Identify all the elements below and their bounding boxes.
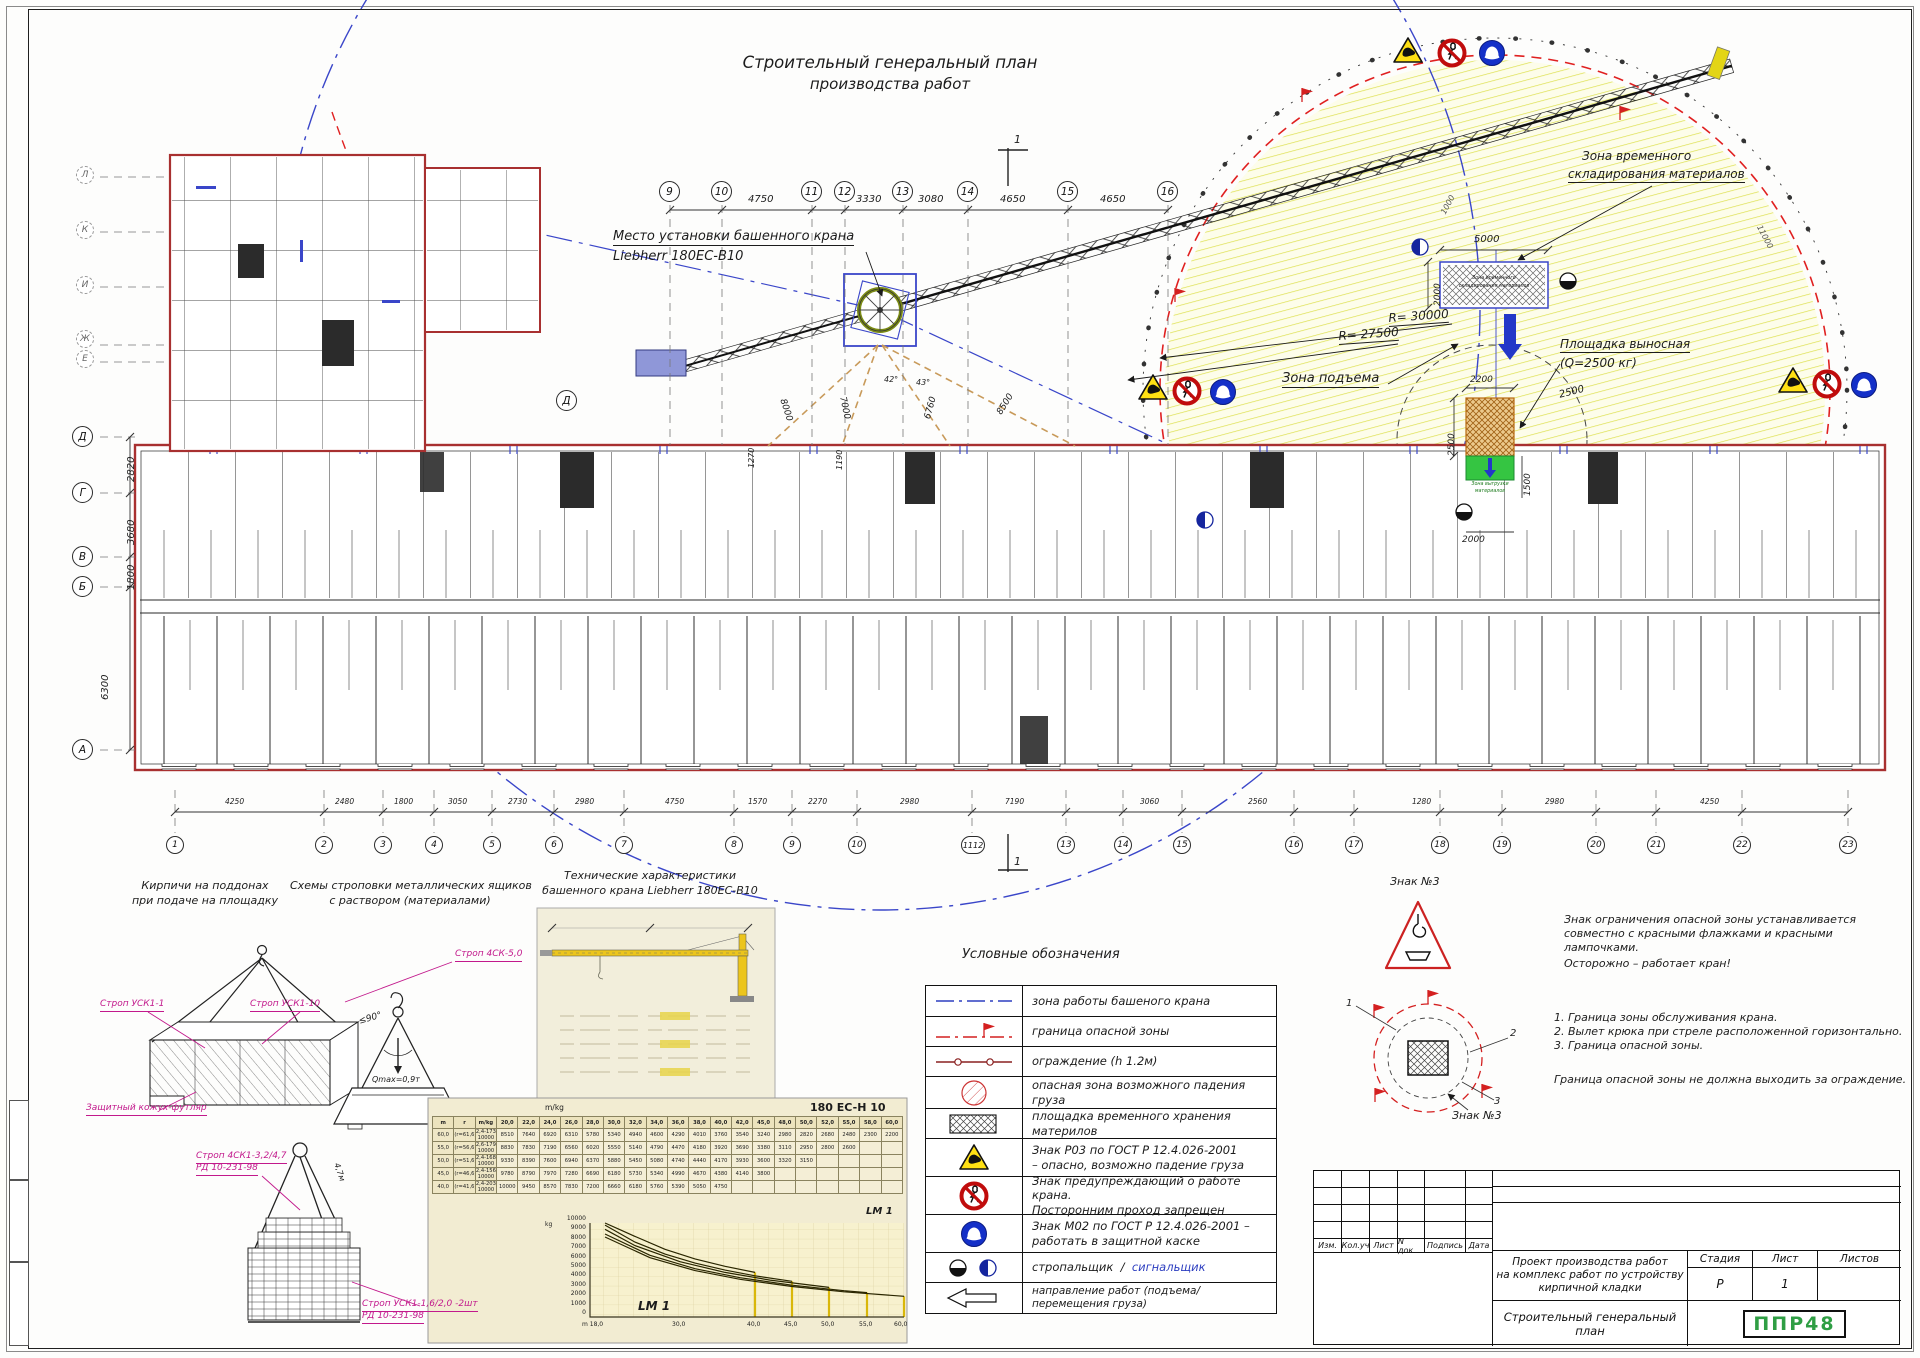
axis-bottom-23: 23: [1839, 836, 1857, 854]
dim-3330: 3330: [856, 194, 881, 205]
axis-top-12: 12: [834, 181, 855, 202]
rev-cell: [1370, 1188, 1398, 1205]
sheet-title-line2: производства работ: [700, 76, 1080, 93]
bdim-5: 2980: [575, 798, 594, 806]
rev-cell: [1425, 1205, 1466, 1222]
storage-inner-text1: Зона временного: [1446, 276, 1542, 281]
note-list-item1: 1. Граница зоны обслуживания крана.: [1554, 1012, 1778, 1024]
ytick-4000: 4000: [560, 1272, 586, 1279]
axis-bottom-3: 3: [374, 836, 392, 854]
section-marker-1-top: 1: [1014, 134, 1021, 146]
rev-cell: [1342, 1222, 1370, 1239]
dim-3680: 3680: [126, 520, 137, 545]
legend-row-fall-zone: опасная зона возможного падения груза: [926, 1076, 1276, 1108]
legend-text: Знак предупреждающий о работе крана.: [1032, 1174, 1241, 1202]
load-capacity-table: mrm/kg20,022,024,026,028,030,032,034,036…: [432, 1116, 903, 1194]
platform-label-line2: (Q=2500 кг): [1560, 357, 1637, 370]
axis-bottom-4: 4: [425, 836, 443, 854]
side-stamp-cell: [9, 1180, 29, 1262]
bdim-4: 2730: [508, 798, 527, 806]
axis-bottom-15: 15: [1173, 836, 1191, 854]
dim-2820: 2820: [126, 457, 137, 482]
ytick-9000: 9000: [560, 1225, 586, 1232]
dim-1190: 1190: [836, 450, 845, 470]
sheet-number-value: 1: [1753, 1268, 1818, 1301]
unload-zone-label1: Зона выгрузки: [1452, 482, 1528, 487]
ppr48-logo: ППР48: [1743, 1310, 1845, 1338]
ytick-0: 0: [560, 1310, 586, 1317]
ytick-10000: 10000: [560, 1216, 586, 1223]
note-list-item3: 3. Граница опасной зоны.: [1554, 1040, 1703, 1052]
bdim-11: 3060: [1140, 798, 1159, 806]
project-line2: на комплекс работ по устройству: [1496, 1269, 1683, 1282]
dim-2200: 2200: [1470, 376, 1493, 386]
rev-cell: [1370, 1171, 1398, 1188]
rev-cell: [1342, 1205, 1370, 1222]
tb-strip1: [1493, 1171, 1901, 1187]
axis-bottom-21: 21: [1647, 836, 1665, 854]
callout-1: 1: [1346, 998, 1352, 1009]
cover-label: Защитный кожух-футляр: [86, 1104, 207, 1116]
warning-note-line3: лампочками.: [1564, 942, 1639, 954]
crane-model-label: 180 EC-H 10: [810, 1102, 886, 1114]
rev-header-ndok: N док.: [1398, 1239, 1425, 1253]
sling5-label-line2: РД 10-231-98: [362, 1312, 424, 1324]
legend-text: Знак М02 по ГОСТ Р 12.4.026-2001 –: [1032, 1219, 1250, 1233]
lm1-label-table: LM 1: [866, 1206, 893, 1217]
kg-axis-label: kg: [545, 1222, 552, 1229]
bdim-2: 1800: [394, 798, 413, 806]
slings-title-line1: Схемы строповки металлических ящиков: [290, 880, 530, 892]
axis-D-repeat: Д: [556, 390, 577, 411]
axis-bottom-20: 20: [1587, 836, 1605, 854]
axis-bottom-9: 9: [783, 836, 801, 854]
axis-bottom-7: 7: [615, 836, 633, 854]
fall-zone-symbol: [926, 1077, 1023, 1108]
sling1-label: Строп 4СК-5,0: [455, 950, 522, 962]
legend-row-fence: ограждение (h 1.2м): [926, 1046, 1276, 1076]
rev-header-data: Дата: [1466, 1239, 1493, 1253]
sign-no3-label-top: Знак №3: [1390, 876, 1440, 888]
legend-text: – опасно, возможно падение груза: [1032, 1158, 1244, 1172]
legend-row-danger-boundary: граница опасной зоны: [926, 1016, 1276, 1046]
sign-m02-symbol: [926, 1215, 1023, 1252]
bdim-7: 1570: [748, 798, 767, 806]
sheet-title-line1: Строительный генеральный план: [700, 54, 1080, 72]
rev-header-podpis: Подпись: [1425, 1239, 1466, 1253]
rev-cell: [1314, 1222, 1342, 1239]
warning-note-line1: Знак ограничения опасной зоны устанавлив…: [1564, 914, 1856, 926]
axis-bottom-17: 17: [1345, 836, 1363, 854]
bdim-13: 1280: [1412, 798, 1431, 806]
dim-2500-platform: 2500: [1448, 433, 1458, 456]
doc-title-cell: Строительный генеральный план: [1493, 1301, 1688, 1346]
angle-42: 42°: [884, 376, 898, 385]
angle-43: 43°: [916, 379, 930, 388]
bdim-9: 2980: [900, 798, 919, 806]
dim-5000: 5000: [1474, 234, 1499, 245]
project-line1: Проект производства работ: [1512, 1256, 1667, 1269]
dim-4650a: 4650: [1000, 194, 1025, 205]
axis-left-Zh: Ж: [76, 330, 94, 348]
axis-left-E: Е: [76, 350, 94, 368]
storage-inner-text2: складирования материалов: [1446, 284, 1542, 289]
ytick-3000: 3000: [560, 1282, 586, 1289]
axis-bottom-22: 22: [1733, 836, 1751, 854]
crane-location-label-line1: Место установки башенного крана: [613, 230, 854, 246]
sign-no3-label-bottom: Знак №3: [1452, 1110, 1502, 1122]
rev-cell: [1370, 1205, 1398, 1222]
side-stamp-cell: [9, 1262, 29, 1346]
project-name-cell: Проект производства работ на комплекс ра…: [1493, 1251, 1688, 1301]
ytick-1000: 1000: [560, 1301, 586, 1308]
lm1-label-chart: LM 1: [638, 1300, 670, 1313]
bdim-6: 4750: [665, 798, 684, 806]
axis-left-L: Л: [76, 166, 94, 184]
xtick-18: m 18,0: [582, 1322, 603, 1329]
slings-title-line2: с раствором (материалами): [290, 895, 530, 907]
rev-cell: [1314, 1171, 1342, 1188]
axis-left-D: Д: [72, 426, 93, 447]
axis-bottom-5: 5: [483, 836, 501, 854]
note-list-item2: 2. Вылет крюка при стреле расположенной …: [1554, 1026, 1902, 1038]
sling4-label-line2: РД 10-231-98: [196, 1164, 258, 1176]
rev-cell: [1466, 1188, 1493, 1205]
legend-row-storage: площадка временного хранения материлов: [926, 1108, 1276, 1138]
legend-row-work-zone: зона работы башеного крана: [926, 986, 1276, 1016]
note-footer: Граница опасной зоны не должна выходить …: [1554, 1074, 1906, 1086]
warning-note-line4: Осторожно – работает кран!: [1564, 958, 1731, 970]
tb-strip2: [1493, 1187, 1901, 1203]
warning-note-line2: совместно с красными флажками и красными: [1564, 928, 1833, 940]
riggers-symbol: [926, 1253, 1023, 1282]
side-stamp-cell: [9, 1100, 29, 1180]
direction-arrow-symbol: [926, 1283, 1023, 1313]
rev-cell: [1398, 1188, 1425, 1205]
tb-strip3: [1493, 1203, 1901, 1251]
dim-2000-below: 2000: [1462, 536, 1485, 546]
title-block: Изм. Кол.уч Лист N док. Подпись Дата Про…: [1313, 1170, 1900, 1345]
axis-bottom-1: 1: [166, 836, 184, 854]
axis-bottom-16: 16: [1285, 836, 1303, 854]
legend-row-riggers: стропальщик / сигнальщик: [926, 1252, 1276, 1282]
sign-p03-symbol: [926, 1139, 1023, 1176]
ytick-2000: 2000: [560, 1291, 586, 1298]
rev-cell: [1398, 1205, 1425, 1222]
logo-cell: ППР48: [1688, 1301, 1901, 1346]
storage-area-symbol: [926, 1109, 1023, 1138]
sheets-header: Листов: [1818, 1251, 1901, 1268]
legend-text: работать в защитной каске: [1032, 1234, 1200, 1248]
sling3-label: Строп УСК1-10: [250, 1000, 320, 1012]
legend-row-sign-crane: Знак предупреждающий о работе крана.Пост…: [926, 1176, 1276, 1214]
signature-area: [1314, 1253, 1493, 1346]
legend-row-sign-m02: Знак М02 по ГОСТ Р 12.4.026-2001 –работа…: [926, 1214, 1276, 1252]
rev-cell: [1466, 1171, 1493, 1188]
legend-row-sign-p03: Знак Р03 по ГОСТ Р 12.4.026-2001– опасно…: [926, 1138, 1276, 1176]
axis-bottom-10: 10: [848, 836, 866, 854]
axis-left-G: Г: [72, 482, 93, 503]
bdim-15: 4250: [1700, 798, 1719, 806]
ytick-8000: 8000: [560, 1235, 586, 1242]
axis-bottom-1112: 1112: [961, 836, 985, 854]
rigger-word: стропальщик: [1032, 1260, 1113, 1274]
xtick-60: 60,0: [894, 1322, 907, 1329]
dim-1270: 1270: [748, 448, 757, 468]
axis-bottom-18: 18: [1431, 836, 1449, 854]
rev-cell: [1370, 1222, 1398, 1239]
load-moment-chart: [588, 1220, 906, 1320]
dim-4650b: 4650: [1100, 194, 1125, 205]
ytick-7000: 7000: [560, 1244, 586, 1251]
bricks-title-line1: Кирпичи на поддонах: [100, 880, 310, 892]
sheet-header: Лист: [1753, 1251, 1818, 1268]
axis-bottom-8: 8: [725, 836, 743, 854]
xtick-50: 50,0: [821, 1322, 834, 1329]
dim-6300: 6300: [100, 675, 111, 700]
bdim-10: 7190: [1005, 798, 1024, 806]
axis-top-15: 15: [1057, 181, 1078, 202]
axis-top-11: 11: [801, 181, 822, 202]
legend-text: Посторонним проход запрещен: [1032, 1203, 1225, 1217]
dim-2000-storage: 2000: [1434, 283, 1444, 306]
axis-top-14: 14: [957, 181, 978, 202]
axis-left-I: И: [76, 276, 94, 294]
qmax-label: Qmax=0,9т: [372, 1076, 420, 1085]
danger-boundary-symbol: [926, 1017, 1023, 1046]
construction-plan-sheet: { "sheet": {"title": ["Строительный гене…: [0, 0, 1920, 1358]
xtick-40: 40,0: [747, 1322, 760, 1329]
work-zone-line-symbol: [926, 986, 1023, 1016]
callout-3: 3: [1494, 1096, 1500, 1107]
legend-text: Знак Р03 по ГОСТ Р 12.4.026-2001: [1032, 1143, 1237, 1157]
signalman-word: сигнальщик: [1132, 1260, 1206, 1274]
unit-label: m/kg: [545, 1104, 564, 1112]
rev-cell: [1466, 1222, 1493, 1239]
rev-cell: [1425, 1222, 1466, 1239]
fence-symbol: [926, 1047, 1023, 1076]
storage-zone-label-line1: Зона временного: [1582, 150, 1691, 163]
sign-crane-symbol: [926, 1177, 1023, 1214]
callout-2: 2: [1510, 1028, 1516, 1039]
axis-bottom-2: 2: [315, 836, 333, 854]
bdim-0: 4250: [225, 798, 244, 806]
axis-left-B: Б: [72, 576, 93, 597]
dim-3080: 3080: [918, 194, 943, 205]
rev-cell: [1466, 1205, 1493, 1222]
rev-cell: [1342, 1171, 1370, 1188]
xtick-30: 30,0: [672, 1322, 685, 1329]
axis-bottom-6: 6: [545, 836, 563, 854]
axis-left-A: А: [72, 739, 93, 760]
ytick-5000: 5000: [560, 1263, 586, 1270]
sheets-total-value: [1818, 1268, 1901, 1301]
dim-1800: 1800: [126, 565, 137, 590]
crane-location-label-line2: Liebherr 180EC-B10: [613, 250, 743, 264]
axis-top-9: 9: [659, 181, 680, 202]
axis-top-10: 10: [711, 181, 732, 202]
storage-zone-label-line2: складирования материалов: [1568, 168, 1745, 183]
revision-table: Изм. Кол.уч Лист N док. Подпись Дата: [1314, 1171, 1493, 1253]
platform-label-line1: Площадка выносная: [1560, 338, 1690, 353]
legend-title: Условные обозначения: [962, 948, 1120, 962]
lifting-zone-label: Зона подъема: [1282, 372, 1379, 388]
xtick-45: 45,0: [784, 1322, 797, 1329]
rev-cell: [1314, 1205, 1342, 1222]
rev-header-list: Лист: [1370, 1239, 1398, 1253]
rev-cell: [1425, 1188, 1466, 1205]
dim-1500: 1500: [1524, 473, 1534, 496]
xtick-55: 55,0: [859, 1322, 872, 1329]
bdim-14: 2980: [1545, 798, 1564, 806]
stage-value: Р: [1688, 1268, 1753, 1301]
separator: /: [1121, 1260, 1125, 1274]
legend-table: зона работы башеного крана граница опасн…: [925, 985, 1277, 1314]
rev-cell: [1314, 1188, 1342, 1205]
axis-bottom-19: 19: [1493, 836, 1511, 854]
rev-cell: [1425, 1171, 1466, 1188]
bdim-12: 2560: [1248, 798, 1267, 806]
unload-zone-label2: материалов: [1452, 489, 1528, 494]
project-line3: кирпичной кладки: [1538, 1282, 1641, 1295]
axis-top-16: 16: [1157, 181, 1178, 202]
bdim-1: 2480: [335, 798, 354, 806]
bricks-title-line2: при подаче на площадку: [100, 895, 310, 907]
rev-header-koluch: Кол.уч: [1342, 1239, 1370, 1253]
bdim-3: 3050: [448, 798, 467, 806]
sling2-label: Строп УСК1-1: [100, 1000, 164, 1012]
rev-cell: [1342, 1188, 1370, 1205]
axis-bottom-14: 14: [1114, 836, 1132, 854]
rev-header-izm: Изм.: [1314, 1239, 1342, 1253]
bdim-8: 2270: [808, 798, 827, 806]
legend-row-direction: направление работ (подъема/ перемещения …: [926, 1282, 1276, 1313]
section-marker-1-bottom: 1: [1014, 856, 1021, 868]
ytick-6000: 6000: [560, 1254, 586, 1261]
spec-title-line2: башенного крана Liebherr 180EC-B10: [505, 885, 795, 897]
rev-cell: [1398, 1171, 1425, 1188]
spec-title-line1: Технические характеристики: [505, 870, 795, 882]
axis-bottom-13: 13: [1057, 836, 1075, 854]
axis-left-K: К: [76, 221, 94, 239]
stage-header: Стадия: [1688, 1251, 1753, 1268]
dim-4750: 4750: [748, 194, 773, 205]
axis-top-13: 13: [892, 181, 913, 202]
axis-left-V: В: [72, 546, 93, 567]
